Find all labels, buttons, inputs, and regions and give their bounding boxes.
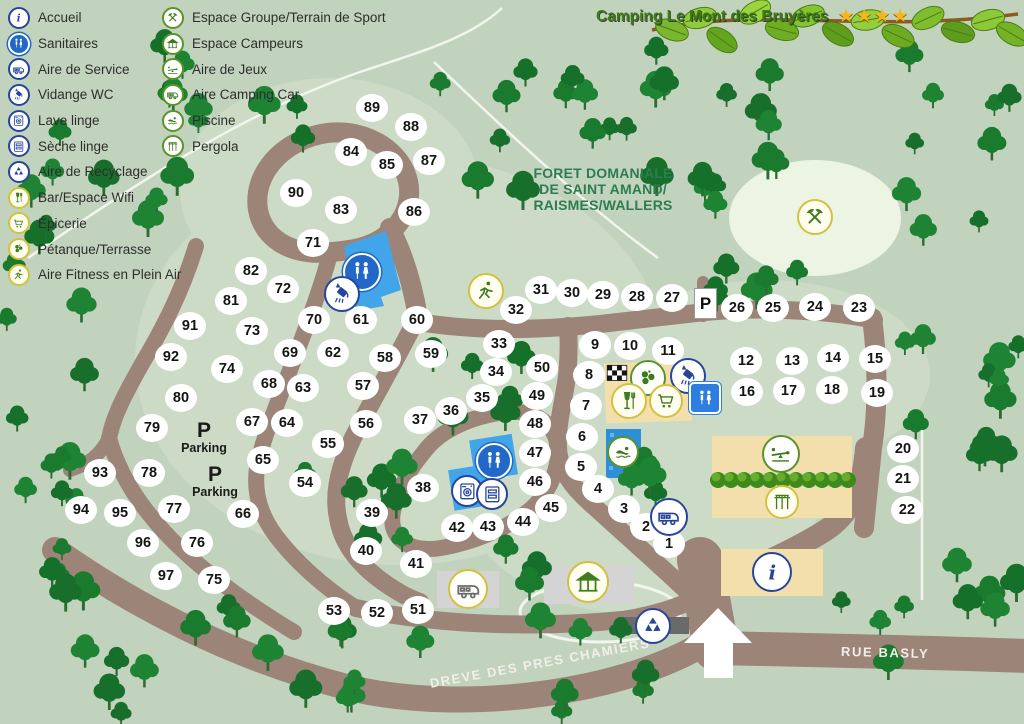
pitch-9: 9 [579,331,611,359]
pitch-50: 50 [526,354,558,382]
pitch-82: 82 [235,257,267,285]
pitch-97: 97 [150,562,182,590]
pitch-47: 47 [519,439,551,467]
legend-item-label: Espace Groupe/Terrain de Sport [192,10,386,25]
pitch-92: 92 [155,343,187,371]
pitch-71: 71 [297,229,329,257]
legend-item-label: Accueil [38,10,82,25]
pitch-27: 27 [656,284,688,312]
pitch-31: 31 [525,276,557,304]
pitch-81: 81 [215,287,247,315]
pitch-35: 35 [466,384,498,412]
pitch-28: 28 [621,283,653,311]
legend-item: Piscine [162,108,386,134]
pitch-83: 83 [325,196,357,224]
camper-icon [162,84,184,106]
accueil-info-icon [752,552,792,592]
pitch-94: 94 [65,496,97,524]
pitch-5: 5 [565,453,597,481]
pitch-40: 40 [350,537,382,565]
fitness-area-icon [468,273,504,309]
pitch-67: 67 [236,408,268,436]
pitch-38: 38 [407,474,439,502]
legend-item: Espace Campeurs [162,31,386,57]
pitch-77: 77 [158,495,190,523]
pitch-44: 44 [507,508,539,536]
pitch-63: 63 [287,374,319,402]
vidange-icon [8,84,30,106]
pitch-16: 16 [731,378,763,406]
pitch-57: 57 [347,372,379,400]
espace-campeurs-icon [567,561,609,603]
legend-item: Bar/Espace Wifi [8,185,181,211]
pergola-icon [162,135,184,157]
legend-item-label: Vidange WC [38,87,114,102]
pitch-36: 36 [435,397,467,425]
pitch-45: 45 [535,494,567,522]
legend-item-label: Aire de Service [38,62,130,77]
pitch-69: 69 [274,339,306,367]
pitch-91: 91 [174,312,206,340]
legend-item: Vidange WC [8,82,181,108]
pitch-64: 64 [271,409,303,437]
pitch-74: 74 [211,355,243,383]
pitch-62: 62 [317,339,349,367]
legend-item-label: Aire Fitness en Plein Air [38,267,181,282]
aire-camping-car-icon [448,569,488,609]
pitch-86: 86 [398,198,430,226]
pitch-76: 76 [181,529,213,557]
map-title-block: Camping Le Mont des Bruyères ★★★★ [596,7,910,26]
pitch-60: 60 [401,306,433,334]
piscine-icon [607,436,639,468]
legend-item-label: Épicerie [38,216,87,231]
fitness-icon [8,264,30,286]
pitch-73: 73 [236,317,268,345]
gazebo-icon [162,33,184,55]
pitch-13: 13 [776,347,808,375]
legend-item: Aire de Recyclage [8,159,181,185]
pitch-65: 65 [247,446,279,474]
bar-area-icon [611,383,647,419]
pitch-55: 55 [312,430,344,458]
legend-item: Aire de Service [8,56,181,82]
legend-item-label: Espace Campeurs [192,36,303,51]
sanitaires-south-icon [476,443,512,479]
legend-item: Sanitaires [8,31,181,57]
pitch-15: 15 [859,345,891,373]
pitch-51: 51 [402,596,434,624]
swimmer-icon [162,110,184,132]
pitch-25: 25 [757,294,789,322]
pitch-87: 87 [413,147,445,175]
pitch-22: 22 [891,496,923,524]
legend-item: Aire de Jeux [162,56,386,82]
sanitaires-east-icon [689,382,721,414]
espace-groupe-icon [797,199,833,235]
legend-item-label: Lave linge [38,113,100,128]
pitch-3: 3 [608,495,640,523]
epicerie-area-icon [649,384,683,418]
pitch-24: 24 [799,293,831,321]
recyclage-icon [635,608,671,644]
pitch-42: 42 [441,514,473,542]
cart-icon [8,212,30,234]
service-icon [8,58,30,80]
legend-column-1: AccueilSanitairesAire de ServiceVidange … [8,5,181,288]
street-label-rue-basly: RUE BASLY [841,644,930,661]
wc-icon [8,33,30,55]
legend-item-label: Sèche linge [38,139,109,154]
legend-item: Accueil [8,5,181,31]
legend-item: Lave linge [8,108,181,134]
pitch-93: 93 [84,459,116,487]
pitch-21: 21 [887,465,919,493]
legend-item-label: Aire Camping Car [192,87,299,102]
bar-wifi-icon [8,187,30,209]
pitch-14: 14 [817,344,849,372]
dryer-icon [8,135,30,157]
pitch-17: 17 [773,377,805,405]
parking-sign: P [694,288,717,319]
pitch-19: 19 [861,379,893,407]
recycle-icon [8,161,30,183]
page-title: Camping Le Mont des Bruyères [596,8,829,26]
pitch-30: 30 [556,279,588,307]
aire-jeux-icon [762,435,800,473]
playground-icon [162,58,184,80]
legend-item: Épicerie [8,211,181,237]
pitch-6: 6 [566,423,598,451]
legend-item-label: Piscine [192,113,236,128]
pitch-68: 68 [253,370,285,398]
legend-item: Espace Groupe/Terrain de Sport [162,5,386,31]
pitch-90: 90 [280,179,312,207]
legend-item-label: Sanitaires [38,36,98,51]
pitch-70: 70 [298,306,330,334]
pitch-96: 96 [127,529,159,557]
legend-item-label: Aire de Jeux [192,62,267,77]
pitch-79: 79 [136,414,168,442]
pitch-95: 95 [104,499,136,527]
pitch-48: 48 [519,410,551,438]
legend-item: Aire Camping Car [162,82,386,108]
forest-label: FORET DOMANIALE DE SAINT AMAND/ RAISMES/… [505,166,701,213]
pitch-8: 8 [573,361,605,389]
vidange-pool-icon [324,276,360,312]
pitch-78: 78 [133,459,165,487]
washer-icon [8,110,30,132]
pitch-66: 66 [227,500,259,528]
legend-item-label: Pergola [192,139,239,154]
pitch-33: 33 [483,330,515,358]
pergola-area-icon [765,485,799,519]
legend-column-2: Espace Groupe/Terrain de SportEspace Cam… [162,5,386,159]
legend-item: Pétanque/Terrasse [8,236,181,262]
legend-item-label: Aire de Recyclage [38,164,148,179]
pitch-53: 53 [318,597,350,625]
pitch-54: 54 [289,469,321,497]
pitch-46: 46 [519,468,551,496]
info-icon [8,7,30,29]
parking-label-1: PParking [181,420,227,455]
camping-map: i [0,0,1024,724]
pitch-34: 34 [480,358,512,386]
pitch-20: 20 [887,435,919,463]
pitch-12: 12 [730,347,762,375]
pitch-75: 75 [198,566,230,594]
pitch-18: 18 [816,376,848,404]
legend-item: Aire Fitness en Plein Air [8,262,181,288]
pitch-88: 88 [395,113,427,141]
pitch-23: 23 [843,294,875,322]
pitch-26: 26 [721,294,753,322]
pitch-80: 80 [165,384,197,412]
pitch-72: 72 [267,275,299,303]
parking-label-2: PParking [192,464,238,499]
aire-service-icon [650,498,688,536]
pitch-56: 56 [350,410,382,438]
pitch-58: 58 [369,344,401,372]
pitch-59: 59 [415,340,447,368]
star-rating: ★★★★ [838,7,910,26]
pitch-43: 43 [472,513,504,541]
pitch-41: 41 [400,550,432,578]
legend-item: Pergola [162,133,386,159]
pitch-7: 7 [570,392,602,420]
pitch-52: 52 [361,599,393,627]
pitch-37: 37 [404,406,436,434]
pitch-39: 39 [356,499,388,527]
tools-icon [162,7,184,29]
seche-linge-icon [476,478,508,510]
pitch-32: 32 [500,296,532,324]
petanque-icon [8,238,30,260]
pitch-29: 29 [587,281,619,309]
legend-item-label: Bar/Espace Wifi [38,190,134,205]
pitch-49: 49 [521,382,553,410]
legend-item-label: Pétanque/Terrasse [38,242,151,257]
legend-item: Sèche linge [8,133,181,159]
pitch-10: 10 [614,332,646,360]
